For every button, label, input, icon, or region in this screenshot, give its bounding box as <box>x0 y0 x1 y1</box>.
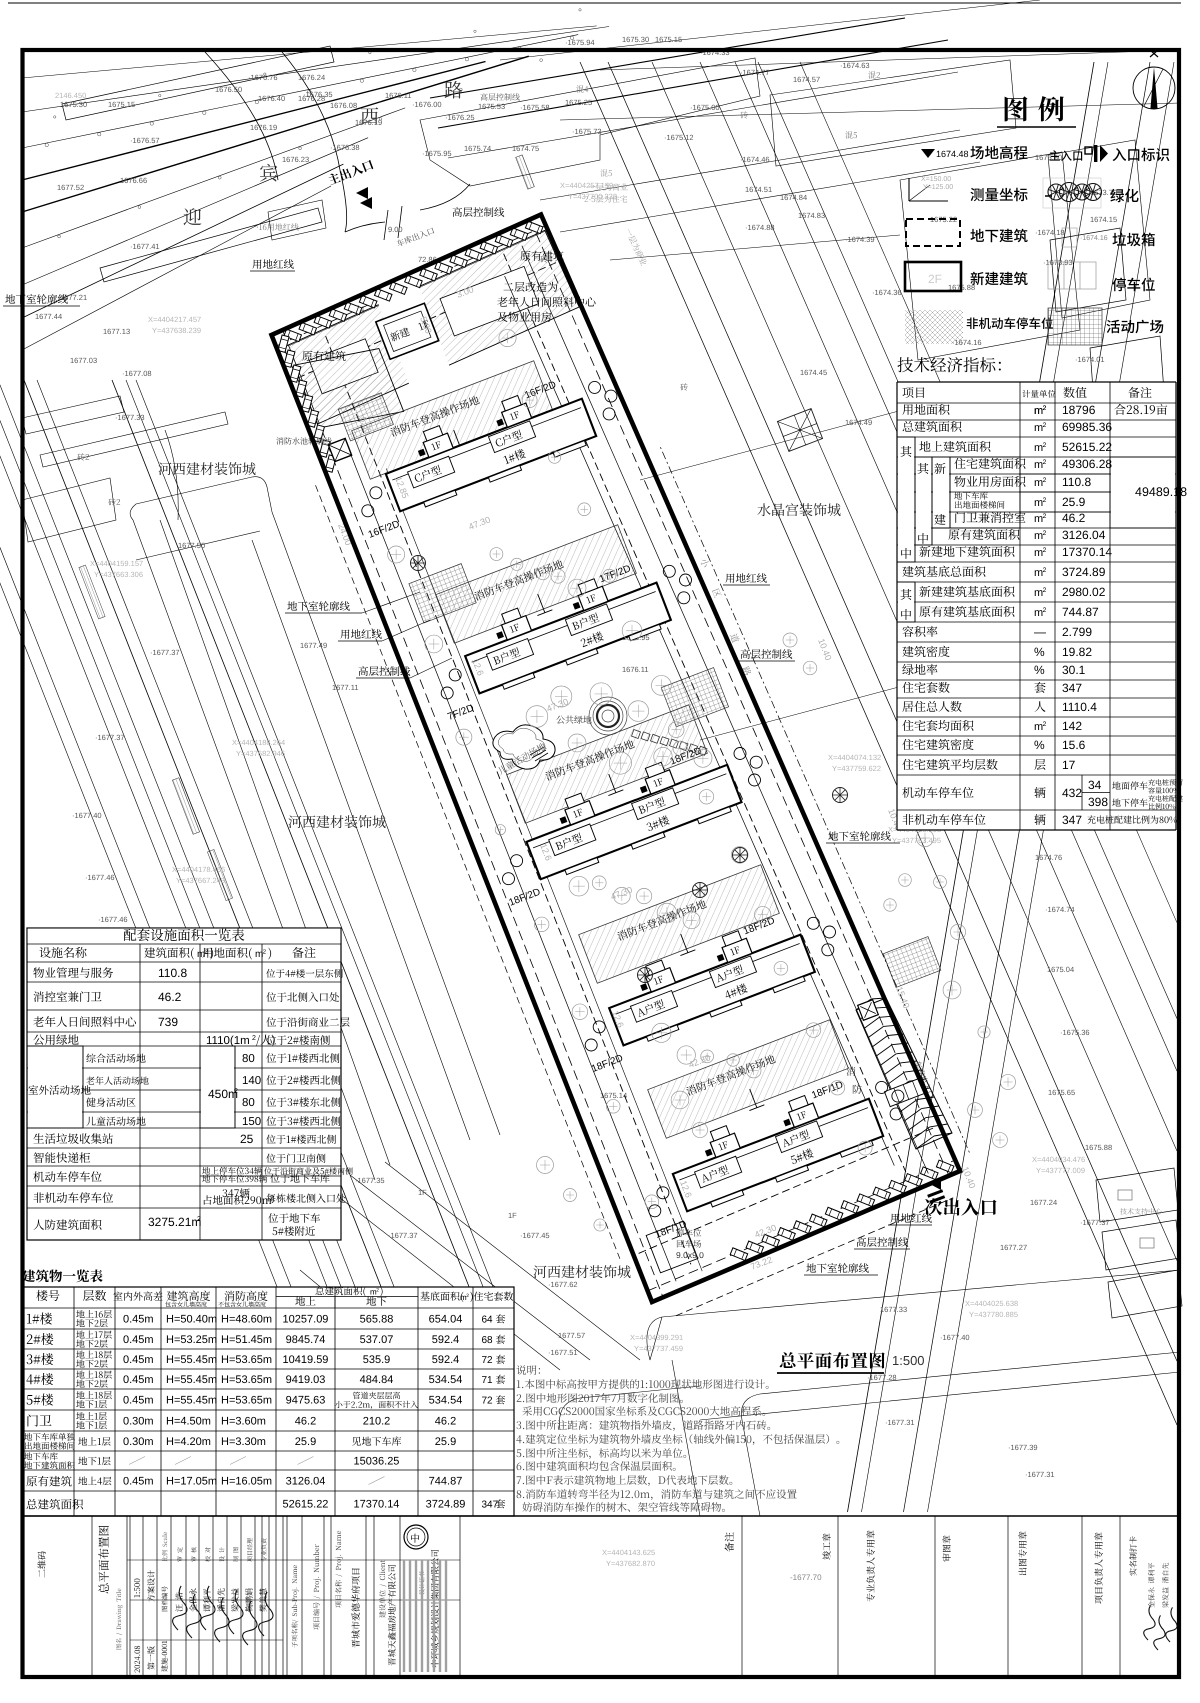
svg-text:25.9: 25.9 <box>435 1436 456 1448</box>
svg-text:·1675.95: ·1675.95 <box>422 149 452 158</box>
svg-text:140: 140 <box>242 1075 261 1087</box>
svg-text:1675.15: 1675.15 <box>655 35 682 44</box>
svg-text:·1676.38: ·1676.38 <box>330 143 360 152</box>
svg-text:1676.08: 1676.08 <box>330 101 357 110</box>
svg-text:3724.89: 3724.89 <box>1062 565 1106 579</box>
svg-text:71: 71 <box>482 1375 494 1386</box>
svg-text:H=53.65m: H=53.65m <box>221 1354 272 1366</box>
svg-text:2: 2 <box>376 1288 379 1294</box>
svg-text:1:500: 1:500 <box>892 1353 925 1368</box>
svg-text:·1677.28: ·1677.28 <box>867 1373 897 1382</box>
svg-text:X=4404399.291: X=4404399.291 <box>630 1333 683 1342</box>
svg-text:·1677.08: ·1677.08 <box>122 369 152 378</box>
svg-text:2: 2 <box>1043 405 1047 412</box>
svg-text:·1676.57: ·1676.57 <box>130 136 160 145</box>
svg-text:1676.23: 1676.23 <box>282 155 309 164</box>
svg-text:1676.11: 1676.11 <box>385 91 412 100</box>
svg-text:64: 64 <box>482 1315 494 1326</box>
svg-text:2: 2 <box>466 1293 469 1299</box>
svg-text:1110(1m: 1110(1m <box>206 1035 250 1047</box>
svg-text:H=55.45m: H=55.45m <box>166 1395 217 1407</box>
svg-text:535.9: 535.9 <box>363 1354 391 1366</box>
svg-text:·1675.12: ·1675.12 <box>664 133 694 142</box>
svg-text:Y=437700.233: Y=437700.233 <box>568 192 617 201</box>
svg-text:1677.13: 1677.13 <box>103 327 130 336</box>
svg-text:·1677.37: ·1677.37 <box>1080 1218 1110 1227</box>
svg-text:Y=437663.306: Y=437663.306 <box>94 570 143 579</box>
svg-text:110.8: 110.8 <box>158 966 187 980</box>
svg-text:X=4404188.264: X=4404188.264 <box>232 738 285 747</box>
svg-text:52615.22: 52615.22 <box>1062 440 1112 454</box>
svg-text:X=150.00: X=150.00 <box>921 176 951 183</box>
svg-text:H=16.05m: H=16.05m <box>221 1476 272 1488</box>
svg-text:·1677.46: ·1677.46 <box>85 873 115 882</box>
svg-text:·1677.35: ·1677.35 <box>355 1176 385 1185</box>
svg-text:1675.30: 1675.30 <box>60 100 87 109</box>
svg-text:·1677.46: ·1677.46 <box>98 915 128 924</box>
svg-text:·1677.41: ·1677.41 <box>130 242 160 251</box>
svg-text:3275.21m: 3275.21m <box>148 1215 201 1229</box>
svg-text:·1677.31: ·1677.31 <box>885 1418 915 1427</box>
svg-text:·1675.58: ·1675.58 <box>520 103 550 112</box>
svg-text:H=17.05m: H=17.05m <box>166 1476 217 1488</box>
svg-text:·1674.01: ·1674.01 <box>1075 355 1105 364</box>
svg-text:565.88: 565.88 <box>360 1314 394 1326</box>
svg-text:·1675.73: ·1675.73 <box>572 127 602 136</box>
svg-text:72: 72 <box>482 1396 494 1407</box>
svg-text:46.2: 46.2 <box>158 990 182 1004</box>
svg-text:Y=437737.459: Y=437737.459 <box>634 1344 683 1353</box>
svg-text:1674.75: 1674.75 <box>512 144 539 153</box>
svg-text:46.2: 46.2 <box>295 1416 316 1428</box>
svg-text:49306.28: 49306.28 <box>1062 457 1112 471</box>
svg-text:H=50.40m: H=50.40m <box>166 1314 217 1326</box>
svg-text:·1674.88: ·1674.88 <box>745 223 775 232</box>
svg-text:·1675.36: ·1675.36 <box>1060 1028 1090 1037</box>
svg-text:69985.36: 69985.36 <box>1062 420 1112 434</box>
svg-text:Y=437777.009: Y=437777.009 <box>1036 1166 1085 1175</box>
svg-text:0.45m: 0.45m <box>123 1314 154 1326</box>
svg-text:1675.74: 1675.74 <box>464 144 491 153</box>
svg-text:·1674.36: ·1674.36 <box>872 288 902 297</box>
svg-text:%: % <box>1034 738 1045 752</box>
svg-text:10257.09: 10257.09 <box>283 1314 329 1326</box>
svg-text:347: 347 <box>1062 681 1082 695</box>
svg-text:0.45m: 0.45m <box>123 1476 154 1488</box>
svg-text:X=4404074.132: X=4404074.132 <box>828 753 881 762</box>
svg-text:·1677.40: ·1677.40 <box>72 811 102 820</box>
svg-text:1674.45: 1674.45 <box>800 368 827 377</box>
svg-text:·1677.51: ·1677.51 <box>548 1348 578 1357</box>
svg-text:34: 34 <box>1088 778 1102 792</box>
svg-text:Y=437682.870: Y=437682.870 <box>606 1559 655 1568</box>
svg-text:X=4404257.159: X=4404257.159 <box>560 181 613 190</box>
svg-text:1677.49: 1677.49 <box>300 641 327 650</box>
svg-text:80: 80 <box>242 1097 255 1109</box>
svg-text:2: 2 <box>1043 547 1047 554</box>
svg-text:H=51.45m: H=51.45m <box>221 1334 272 1346</box>
svg-text:1674.49: 1674.49 <box>845 418 872 427</box>
svg-text:17370.14: 17370.14 <box>1062 545 1112 559</box>
svg-text:2: 2 <box>1043 607 1047 614</box>
svg-text:·1674.39: ·1674.39 <box>845 235 875 244</box>
svg-text:1676.40: 1676.40 <box>258 94 285 103</box>
svg-text:1675.65: 1675.65 <box>1048 1088 1075 1097</box>
svg-text:432: 432 <box>1062 786 1082 800</box>
svg-text:72: 72 <box>482 1355 494 1366</box>
svg-text:2.799: 2.799 <box>1062 625 1092 639</box>
svg-text:9419.03: 9419.03 <box>286 1374 326 1386</box>
svg-text:19.82: 19.82 <box>1062 645 1092 659</box>
svg-text:0.30m: 0.30m <box>123 1436 154 1448</box>
svg-text:9.00: 9.00 <box>388 225 403 234</box>
svg-text:398: 398 <box>1088 795 1108 809</box>
svg-text:2: 2 <box>1043 530 1047 537</box>
svg-text:2: 2 <box>1043 459 1047 466</box>
svg-text:H=55.45m: H=55.45m <box>166 1374 217 1386</box>
svg-text:X=4404025.638: X=4404025.638 <box>965 1299 1018 1308</box>
svg-text:1677.03: 1677.03 <box>70 356 97 365</box>
svg-text:3126.04: 3126.04 <box>286 1476 326 1488</box>
svg-text:2: 2 <box>1043 587 1047 594</box>
svg-text:1110.4: 1110.4 <box>1062 700 1097 714</box>
svg-text:0.30m: 0.30m <box>123 1416 154 1428</box>
svg-text:2: 2 <box>252 1035 256 1042</box>
svg-text:Y=437667.243: Y=437667.243 <box>176 876 225 885</box>
svg-text:1674.57: 1674.57 <box>793 75 820 84</box>
svg-text:·1677.39: ·1677.39 <box>1008 1443 1038 1452</box>
svg-text:210.2: 210.2 <box>363 1416 391 1428</box>
svg-text:%: % <box>1034 645 1045 659</box>
svg-text:·1674.16: ·1674.16 <box>1080 235 1108 242</box>
svg-text:110.8: 110.8 <box>1062 475 1091 489</box>
svg-text:H=53.65m: H=53.65m <box>221 1374 272 1386</box>
svg-text:Y=437759.622: Y=437759.622 <box>832 764 881 773</box>
svg-text:2F: 2F <box>928 272 942 286</box>
svg-text:1674.15: 1674.15 <box>1090 215 1117 224</box>
svg-text:46.2: 46.2 <box>435 1416 456 1428</box>
svg-text:10419.59: 10419.59 <box>283 1354 329 1366</box>
svg-text:1675.15: 1675.15 <box>108 100 135 109</box>
svg-text:0.45m: 0.45m <box>123 1334 154 1346</box>
svg-text:H=4.50m: H=4.50m <box>166 1416 211 1428</box>
svg-text:H=3.60m: H=3.60m <box>221 1416 266 1428</box>
svg-text:2: 2 <box>197 1216 201 1223</box>
svg-text:347: 347 <box>1062 813 1082 827</box>
svg-text:2: 2 <box>1043 497 1047 504</box>
svg-text:3724.89: 3724.89 <box>426 1499 466 1511</box>
svg-text:·1674.74: ·1674.74 <box>1045 905 1075 914</box>
svg-text:1674.83: 1674.83 <box>798 211 825 220</box>
svg-text:1674.84: 1674.84 <box>780 193 807 202</box>
svg-text:·1674.46: ·1674.46 <box>740 155 770 164</box>
svg-text:1677.27: 1677.27 <box>1000 1243 1027 1252</box>
svg-text:1676.19: 1676.19 <box>250 123 277 132</box>
svg-text:739: 739 <box>158 1015 178 1029</box>
svg-text:1675.25: 1675.25 <box>565 98 592 107</box>
svg-text:H=48.60m: H=48.60m <box>221 1314 272 1326</box>
svg-text:347: 347 <box>482 1500 499 1511</box>
svg-text:H=3.30m: H=3.30m <box>221 1436 266 1448</box>
svg-text:·1673.93: ·1673.93 <box>1043 258 1073 267</box>
svg-text:·1674.18: ·1674.18 <box>1035 228 1065 237</box>
svg-text:2: 2 <box>1043 721 1047 728</box>
svg-text:15.6: 15.6 <box>1062 738 1086 752</box>
svg-text:1676.11: 1676.11 <box>622 665 649 674</box>
svg-text:2: 2 <box>1043 477 1047 484</box>
svg-text:1676.66: 1676.66 <box>120 176 147 185</box>
svg-text:46.2: 46.2 <box>1062 511 1086 525</box>
svg-text:25.9: 25.9 <box>1062 495 1086 509</box>
svg-text:25.9: 25.9 <box>295 1436 316 1448</box>
svg-text:X=4404143.625: X=4404143.625 <box>602 1548 655 1557</box>
svg-text:1676.19: 1676.19 <box>355 118 382 127</box>
svg-text:30.1: 30.1 <box>1062 663 1086 677</box>
svg-text:68: 68 <box>482 1335 494 1346</box>
svg-text:0.45m: 0.45m <box>123 1354 154 1366</box>
svg-text:1675.30: 1675.30 <box>622 35 649 44</box>
svg-text:1676.50: 1676.50 <box>215 85 242 94</box>
svg-text:1674.48: 1674.48 <box>936 149 969 159</box>
svg-text:1677.57: 1677.57 <box>558 1331 585 1340</box>
svg-text:1676.24: 1676.24 <box>298 73 325 82</box>
svg-text:1675.04: 1675.04 <box>1047 965 1074 974</box>
svg-text:·1675.00: ·1675.00 <box>690 103 720 112</box>
svg-text:25: 25 <box>240 1132 254 1146</box>
svg-text:X=4404034.476: X=4404034.476 <box>1032 1155 1085 1164</box>
svg-text:·1677.40: ·1677.40 <box>940 1333 970 1342</box>
svg-text:484.84: 484.84 <box>360 1374 394 1386</box>
svg-text:·1677.37: ·1677.37 <box>95 733 125 742</box>
svg-text:Y=437638.239: Y=437638.239 <box>152 326 201 335</box>
svg-text:2: 2 <box>1043 422 1047 429</box>
svg-text:2: 2 <box>1043 567 1047 574</box>
svg-text:·1677.45: ·1677.45 <box>520 1231 550 1240</box>
svg-text:H=4.20m: H=4.20m <box>166 1436 211 1448</box>
svg-text:1675.88: 1675.88 <box>1085 1143 1112 1152</box>
svg-text:X=4404159.157: X=4404159.157 <box>90 559 143 568</box>
svg-text:2: 2 <box>234 1088 238 1095</box>
svg-text:18796: 18796 <box>1062 403 1096 417</box>
svg-text:744.87: 744.87 <box>1062 605 1099 619</box>
svg-text:1F: 1F <box>508 1211 517 1220</box>
svg-text:0.45m: 0.45m <box>123 1374 154 1386</box>
svg-text:—: — <box>1034 625 1046 639</box>
svg-text:654.04: 654.04 <box>429 1314 463 1326</box>
svg-text:·1677.33: ·1677.33 <box>115 413 145 422</box>
svg-text:534.54: 534.54 <box>429 1374 463 1386</box>
svg-text:1F: 1F <box>418 1188 427 1197</box>
svg-text:2980.02: 2980.02 <box>1062 585 1106 599</box>
svg-text:2: 2 <box>1043 442 1047 449</box>
svg-text:17370.14: 17370.14 <box>354 1499 400 1511</box>
svg-text:592.4: 592.4 <box>432 1334 460 1346</box>
svg-text:-1677.70: -1677.70 <box>790 1573 822 1582</box>
svg-text:1675.50: 1675.50 <box>1035 153 1062 162</box>
svg-text:0.45m: 0.45m <box>123 1395 154 1407</box>
svg-text:H=55.45m: H=55.45m <box>166 1354 217 1366</box>
svg-text:X=4404178.466: X=4404178.466 <box>172 865 225 874</box>
svg-text:·1674.77: ·1674.77 <box>740 68 770 77</box>
svg-text:52615.22: 52615.22 <box>283 1499 329 1511</box>
svg-text:·1677.37: ·1677.37 <box>150 648 180 657</box>
svg-text:1674.51: 1674.51 <box>745 185 772 194</box>
svg-text:142: 142 <box>1062 719 1082 733</box>
svg-text:Y=125.00: Y=125.00 <box>923 184 953 191</box>
svg-text:1674.76: 1674.76 <box>1035 853 1062 862</box>
svg-text:1677.33: 1677.33 <box>880 1305 907 1314</box>
svg-text:·1677.37: ·1677.37 <box>388 1231 418 1240</box>
svg-text:1675.53: 1675.53 <box>478 102 505 111</box>
svg-text:1677.44: 1677.44 <box>35 312 62 321</box>
svg-text:1677.11: 1677.11 <box>332 683 359 692</box>
svg-text:80: 80 <box>242 1053 255 1065</box>
svg-text:·1676.35: ·1676.35 <box>303 90 333 99</box>
svg-text:·1677.62: ·1677.62 <box>548 1280 578 1289</box>
svg-text:·1676.00: ·1676.00 <box>412 100 442 109</box>
svg-text:2146.450: 2146.450 <box>55 91 86 100</box>
svg-text:744.87: 744.87 <box>429 1476 463 1488</box>
svg-text:Y=437682.946: Y=437682.946 <box>236 749 285 758</box>
svg-text:150: 150 <box>242 1116 261 1128</box>
svg-text:9845.74: 9845.74 <box>286 1334 326 1346</box>
svg-text:·1674.63: ·1674.63 <box>840 61 870 70</box>
svg-text:1677.24: 1677.24 <box>1030 1198 1057 1207</box>
svg-text:Y=437780.885: Y=437780.885 <box>969 1310 1018 1319</box>
svg-text:H=53.25m: H=53.25m <box>166 1334 217 1346</box>
svg-text:H=53.65m: H=53.65m <box>221 1395 272 1407</box>
svg-text:·1675.94: ·1675.94 <box>565 38 595 47</box>
svg-text:1677.50: 1677.50 <box>178 541 205 550</box>
svg-text:1677.52: 1677.52 <box>57 183 84 192</box>
svg-text:9475.63: 9475.63 <box>286 1395 326 1407</box>
svg-text:592.4: 592.4 <box>432 1354 460 1366</box>
svg-text:X=4404217.457: X=4404217.457 <box>148 315 201 324</box>
svg-text:3126.04: 3126.04 <box>1062 528 1106 542</box>
svg-text:·1676.76: ·1676.76 <box>248 73 278 82</box>
svg-text:2: 2 <box>270 1195 274 1202</box>
svg-text:534.54: 534.54 <box>429 1395 463 1407</box>
svg-text:15036.25: 15036.25 <box>354 1456 400 1468</box>
svg-text:537.07: 537.07 <box>360 1334 394 1346</box>
svg-text:17: 17 <box>1062 758 1076 772</box>
svg-text:%: % <box>1034 663 1045 677</box>
svg-text:·1677.31: ·1677.31 <box>1025 1470 1055 1479</box>
svg-text:2: 2 <box>1043 513 1047 520</box>
svg-text:·1676.25: ·1676.25 <box>445 113 475 122</box>
svg-text:9.0x9.0: 9.0x9.0 <box>676 1250 704 1260</box>
